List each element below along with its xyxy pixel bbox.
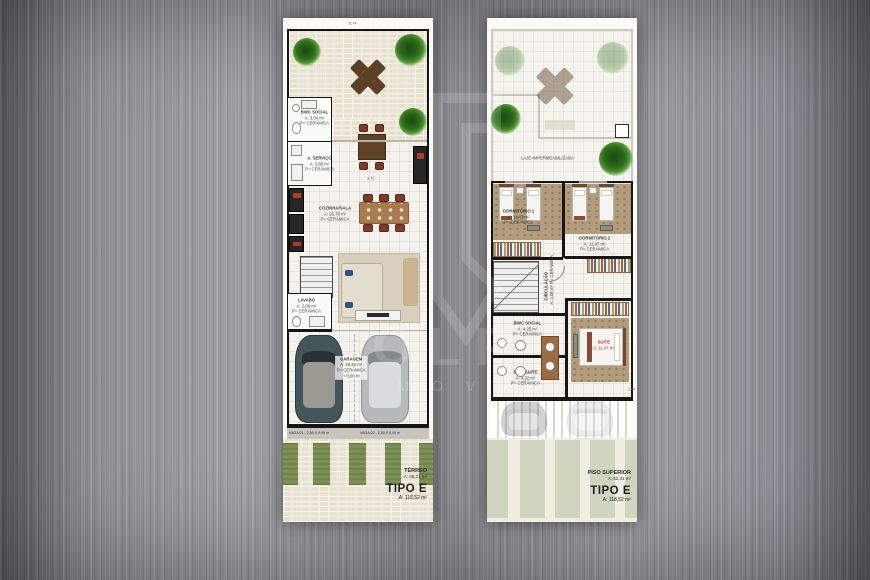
dining-table [359,202,409,224]
kitchen-cabinet [289,236,304,252]
window [579,181,607,183]
bwc-wall [491,313,567,316]
stove [289,214,304,234]
ghost-grass-strip [555,440,580,518]
terrace-x-table [349,58,387,96]
grass-strip [313,443,330,485]
wardrobe [571,302,629,316]
car-silver [361,335,409,423]
plant [495,46,525,76]
vaga2-label: VAGA 02 - 2,50 X 5,00 m [360,431,400,435]
window [505,181,533,183]
chair [363,194,373,202]
dorm-divider-wall [562,183,565,258]
suite-west-wall [565,298,568,399]
sliding-door-line [332,140,427,142]
sofa-pillow [345,270,353,276]
washer [291,145,302,156]
chair [395,224,405,232]
hall-wall [565,256,633,259]
room-label-cozinha: COZINHA/SALA A: 26,78 m² P= CERÂMICA [319,206,351,223]
dim-top: 5,74 [349,21,356,25]
chaise [403,258,418,306]
ghost-car [501,402,547,436]
sink-icon [515,340,526,351]
floor-summary: TÉRREO A: 66,21 m² [404,468,427,479]
toilet-icon [497,338,507,348]
room-label-lavabo: LAVABO A: 2,06 m² P= CERÂMICA [292,298,321,315]
type-summary: TIPO E A: 118,52 m² [386,483,427,501]
grass-strip [385,443,401,485]
grass-strip [283,443,298,485]
ghost-grass-strip [520,440,545,518]
sink-icon [292,104,300,112]
bar-cabinet [413,146,427,184]
room-label-garagem: GARAGEM A: 26,40 m² P= CERÂMICA + 0,00 m [335,356,367,380]
room-label-suite: SUITE A: 11,47 m² [593,340,615,351]
laundry-tub [291,164,303,181]
plant [293,38,321,66]
toilet-icon [292,316,301,327]
grass-strip [349,443,366,485]
bed-runner [587,332,592,362]
floorplan-render: 5,74 BWC SOCIAL A: 3,04 m² P= CERÂMICA [0,0,870,580]
wardrobe [587,258,631,273]
nightstand [516,187,524,194]
ghost-car [567,402,613,436]
chair [363,224,373,232]
plan-card-terreo: 5,74 BWC SOCIAL A: 3,04 m² P= CERÂMICA [283,18,433,522]
wardrobe [493,242,541,257]
terrace-square-table [358,134,386,160]
tv [367,313,389,317]
plant [597,42,629,74]
vignette-overlay [0,0,870,580]
chair [359,162,368,170]
fridge [289,188,304,212]
stair-diagonal [493,261,539,313]
sink-icon [515,366,526,377]
chair [379,194,389,202]
plan-card-superior: LAJE IMPERMEABILIZADA DORMITÓRIO 1 A: 11… [487,18,637,522]
plant [395,34,427,66]
room-label-dorm1: DORMITÓRIO 1 A: 11,43 m² P= CERÂMICA [503,209,534,226]
floor-summary: PISO SUPERIOR A: 52,31 m² [588,470,631,481]
bed-runner [574,216,585,220]
bench [600,225,613,231]
chair [359,124,368,132]
ghost-x-table [535,66,575,106]
room-label-bwc-social: BWC SOCIAL A: 4,25 m² P= CERÂMICA [513,321,542,338]
chair [375,162,384,170]
planter-box [615,124,629,138]
room-label-dorm2: DORMITÓRIO 2 A: 11,47 m² P= CERÂMICA [579,236,610,253]
plant [491,104,521,134]
suite-wall [565,298,633,301]
vaga1-label: VAGA 01 - 2,50 X 5,00 m [289,431,329,435]
laje-label: LAJE IMPERMEABILIZADA [521,156,574,162]
bench [527,225,540,231]
plant [399,108,427,136]
room-label-bwc-social: BWC SOCIAL A: 3,04 m² P= CERÂMICA [300,110,329,127]
ghost-bench [545,120,575,130]
sink-counter [301,100,317,109]
chair [395,194,405,202]
nightstand [589,187,597,194]
room-label-servico: A. SERVIÇO A: 2,85 m² P= CERÂMICA [305,156,334,173]
ghost-grass-strip [487,440,508,518]
dim-kitchen: 3,72 [367,176,374,180]
chair [379,224,389,232]
chair [375,124,384,132]
single-bed [599,187,614,221]
double-vanity [541,336,559,380]
sofa-pillow [345,302,353,308]
plant [599,142,633,176]
garage-wall [287,329,332,332]
toilet-icon [497,366,507,376]
garage-line [332,330,427,331]
type-summary: TIPO E A: 118,52 m² [590,485,631,503]
lavabo-counter [309,316,325,327]
staircase [300,256,333,298]
bench [573,334,578,358]
dim-right: 2,84 [628,387,635,391]
